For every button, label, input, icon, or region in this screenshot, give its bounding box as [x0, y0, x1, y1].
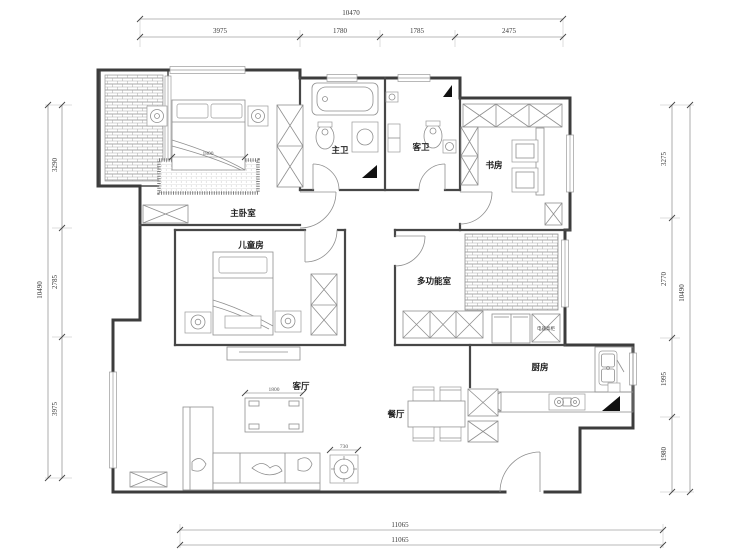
dim-right-seg-0: 3275: [660, 152, 668, 167]
tatami-mat: [465, 234, 558, 310]
toilet-master: [316, 122, 334, 149]
dimension-chain-right: 3275 2770 1995 1980 10490: [660, 102, 694, 495]
dim-right-seg-3: 1980: [660, 447, 668, 462]
dim-right-seg-2: 1995: [660, 372, 668, 387]
dining-chair-3: [413, 427, 434, 441]
cabinet-bedroom: [143, 205, 188, 223]
side-table-dim: 730: [327, 444, 361, 453]
master-bedroom-furniture: 1800 主卧室: [143, 100, 303, 223]
dim-top-seg-1: 1780: [333, 27, 348, 35]
shaft-marker-kitchen: [602, 396, 620, 411]
dim-right-total: 10490: [678, 284, 686, 302]
dining-chair-2: [440, 387, 461, 401]
kids-room-furniture: 儿童房: [185, 240, 337, 335]
door-entry: [500, 452, 540, 492]
dim-left-seg-1: 2785: [51, 275, 59, 290]
washer-guest: [443, 140, 456, 153]
shower-guest: [388, 124, 400, 152]
wardrobe-kids: [311, 274, 337, 335]
multi-room-furniture: 电器高柜 多功能室: [403, 234, 560, 343]
study-furniture: 书房: [461, 104, 562, 225]
room-label-multi-room: 多功能室: [417, 276, 452, 287]
room-label-master-bath: 主卫: [331, 145, 349, 156]
shaft-marker-master-bath: [362, 165, 377, 178]
dimension-chain-bottom: 11065 11065: [177, 521, 666, 548]
side-table: [330, 455, 358, 483]
door-guest-bath: [419, 164, 445, 190]
cabinet-dining-2: [468, 421, 498, 442]
stove: [549, 394, 585, 410]
room-label-kitchen: 厨房: [531, 362, 548, 373]
room-label-guest-bath: 客卫: [411, 142, 430, 153]
desk-chair-1: [512, 140, 538, 162]
dim-side-table: 730: [340, 444, 349, 450]
sink-guest: [386, 92, 398, 102]
dim-top-seg-0: 3975: [213, 27, 228, 35]
window-master-bath: [327, 75, 357, 82]
room-label-dining: 餐厅: [386, 409, 405, 420]
dim-left-seg-0: 3290: [51, 158, 59, 173]
window-master-bedroom: [170, 67, 245, 74]
vanity-master: [352, 122, 378, 152]
dim-bottom-0: 11065: [391, 521, 409, 529]
dim-left-total: 10490: [36, 281, 44, 299]
bookshelf-left: [461, 127, 478, 185]
tv-cabinet: [227, 347, 300, 360]
coffee-table: [245, 398, 303, 432]
window-study: [567, 135, 574, 192]
kids-bed: [213, 252, 273, 335]
door-study: [460, 192, 492, 224]
living-furniture: 1800 730 客厅: [130, 347, 361, 490]
desk-chair-2: [512, 168, 538, 192]
cabinet-study: [545, 203, 562, 225]
floor-plan-drawing: 10470 3975 1780 1785 2475 10490 3290 278…: [0, 0, 740, 555]
dining-chair-1: [413, 387, 434, 401]
kitchen-small-box: [608, 383, 620, 392]
kids-nightstand-left: [185, 312, 211, 333]
window-living: [110, 372, 117, 468]
window-guest-bath: [398, 75, 430, 82]
floor-plan: 10470 3975 1780 1785 2475 10490 3290 278…: [0, 0, 740, 555]
appliance-cabinet-label: 电器高柜: [537, 325, 555, 332]
bathtub: [312, 83, 378, 115]
kids-nightstand-right: [275, 311, 301, 332]
dim-top-seg-3: 2475: [502, 27, 517, 35]
door-master-bedroom: [300, 192, 336, 228]
dimension-chain-top: 10470 3975 1780 1785 2475: [137, 9, 566, 47]
dining-chair-4: [440, 427, 461, 441]
door-kids-room: [305, 230, 337, 262]
master-bed: [172, 100, 245, 170]
shaft-marker-guest-bath: [443, 85, 452, 97]
guest-bath-fixtures: 客卫: [386, 85, 456, 153]
dim-top-total: 10470: [342, 9, 360, 17]
dim-coffee-table: 1800: [269, 387, 280, 393]
dining-table: [408, 401, 465, 427]
dim-master-bed: 1800: [203, 151, 214, 157]
door-master-bath: [313, 164, 339, 190]
window-multi-room: [562, 240, 569, 307]
cabinet-row-multi: [403, 311, 483, 338]
fridge: [492, 314, 530, 343]
dim-right-seg-1: 2770: [660, 272, 668, 287]
room-label-master-bedroom: 主卧室: [230, 208, 256, 219]
cabinet-living: [130, 472, 167, 487]
sink: [599, 351, 624, 385]
dining-furniture: 餐厅: [386, 387, 498, 442]
bookshelf-top: [463, 104, 562, 127]
room-label-study: 书房: [485, 160, 502, 171]
cabinet-dining-1: [468, 389, 498, 416]
dim-top-seg-2: 1785: [410, 27, 425, 35]
dimension-chain-left: 10490 3290 2785 3975: [36, 102, 72, 481]
nightstand-left: [147, 106, 167, 126]
master-bath-fixtures: 主卫: [312, 83, 378, 178]
appliance-cabinet: 电器高柜: [532, 314, 560, 342]
wardrobe-master: [277, 105, 303, 187]
room-label-living: 客厅: [291, 381, 310, 392]
nightstand-right: [248, 106, 268, 126]
dim-left-seg-2: 3975: [51, 402, 59, 417]
door-multi-room: [395, 236, 425, 266]
dim-bottom-1: 11065: [391, 536, 409, 544]
room-label-kids-room: 儿童房: [237, 240, 264, 251]
